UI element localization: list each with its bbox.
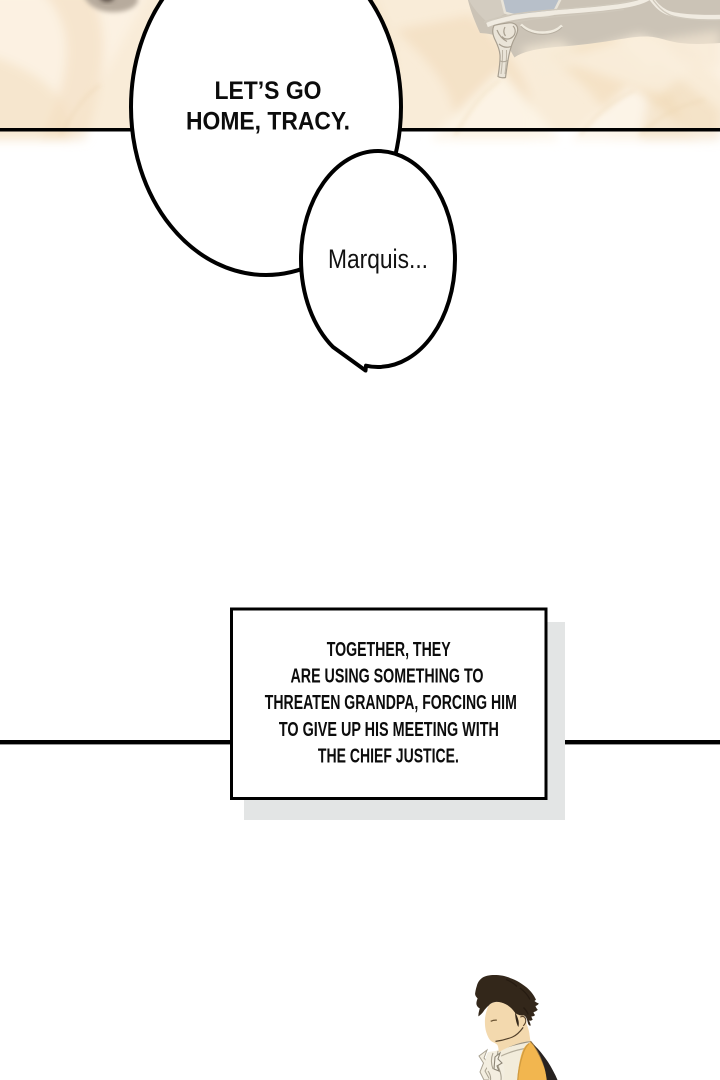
svg-text:THREATEN GRANDPA, FORCING HIM: THREATEN GRANDPA, FORCING HIM <box>265 691 517 714</box>
svg-text:Marquis...: Marquis... <box>328 244 428 274</box>
svg-text:TO GIVE UP HIS MEETING WITH: TO GIVE UP HIS MEETING WITH <box>279 718 499 741</box>
svg-text:TOGETHER, THEY: TOGETHER, THEY <box>327 638 451 661</box>
svg-text:HOME, TRACY.: HOME, TRACY. <box>186 108 350 136</box>
svg-text:THE CHIEF JUSTICE.: THE CHIEF JUSTICE. <box>318 744 459 767</box>
svg-text:LET’S GO: LET’S GO <box>215 77 322 105</box>
svg-text:ARE USING SOMETHING TO: ARE USING SOMETHING TO <box>291 665 484 688</box>
